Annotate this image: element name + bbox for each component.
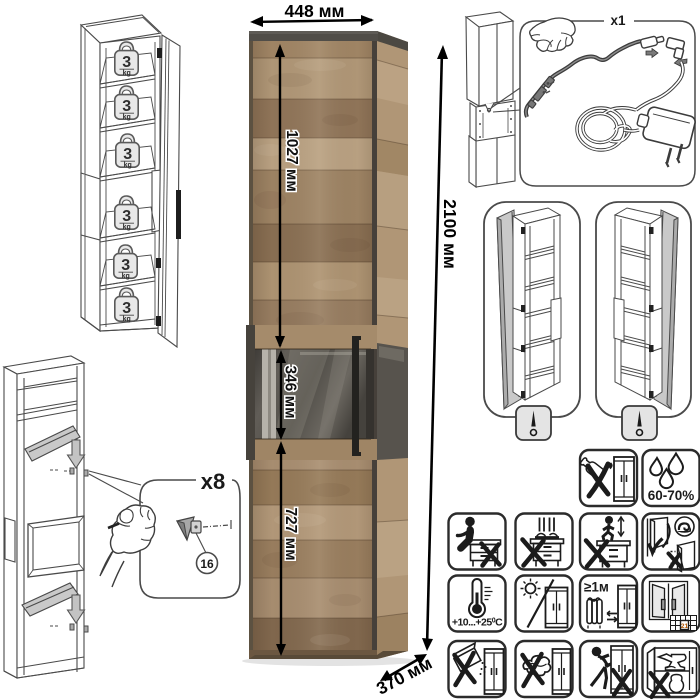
- svg-text:1027 мм: 1027 мм: [283, 130, 300, 192]
- svg-text:21: 21: [681, 623, 689, 630]
- svg-text:60-70%: 60-70%: [648, 488, 695, 503]
- svg-text:346 мм: 346 мм: [282, 365, 299, 418]
- svg-text:727 мм: 727 мм: [282, 507, 299, 560]
- svg-text:2100 мм: 2100 мм: [440, 199, 460, 269]
- svg-text:x1: x1: [610, 13, 626, 28]
- svg-text:448 мм: 448 мм: [285, 1, 345, 21]
- svg-text:+10...+250C: +10...+250C: [452, 617, 503, 629]
- svg-text:≥1м: ≥1м: [584, 580, 609, 595]
- svg-text:16: 16: [200, 557, 214, 571]
- svg-text:x8: x8: [201, 469, 225, 494]
